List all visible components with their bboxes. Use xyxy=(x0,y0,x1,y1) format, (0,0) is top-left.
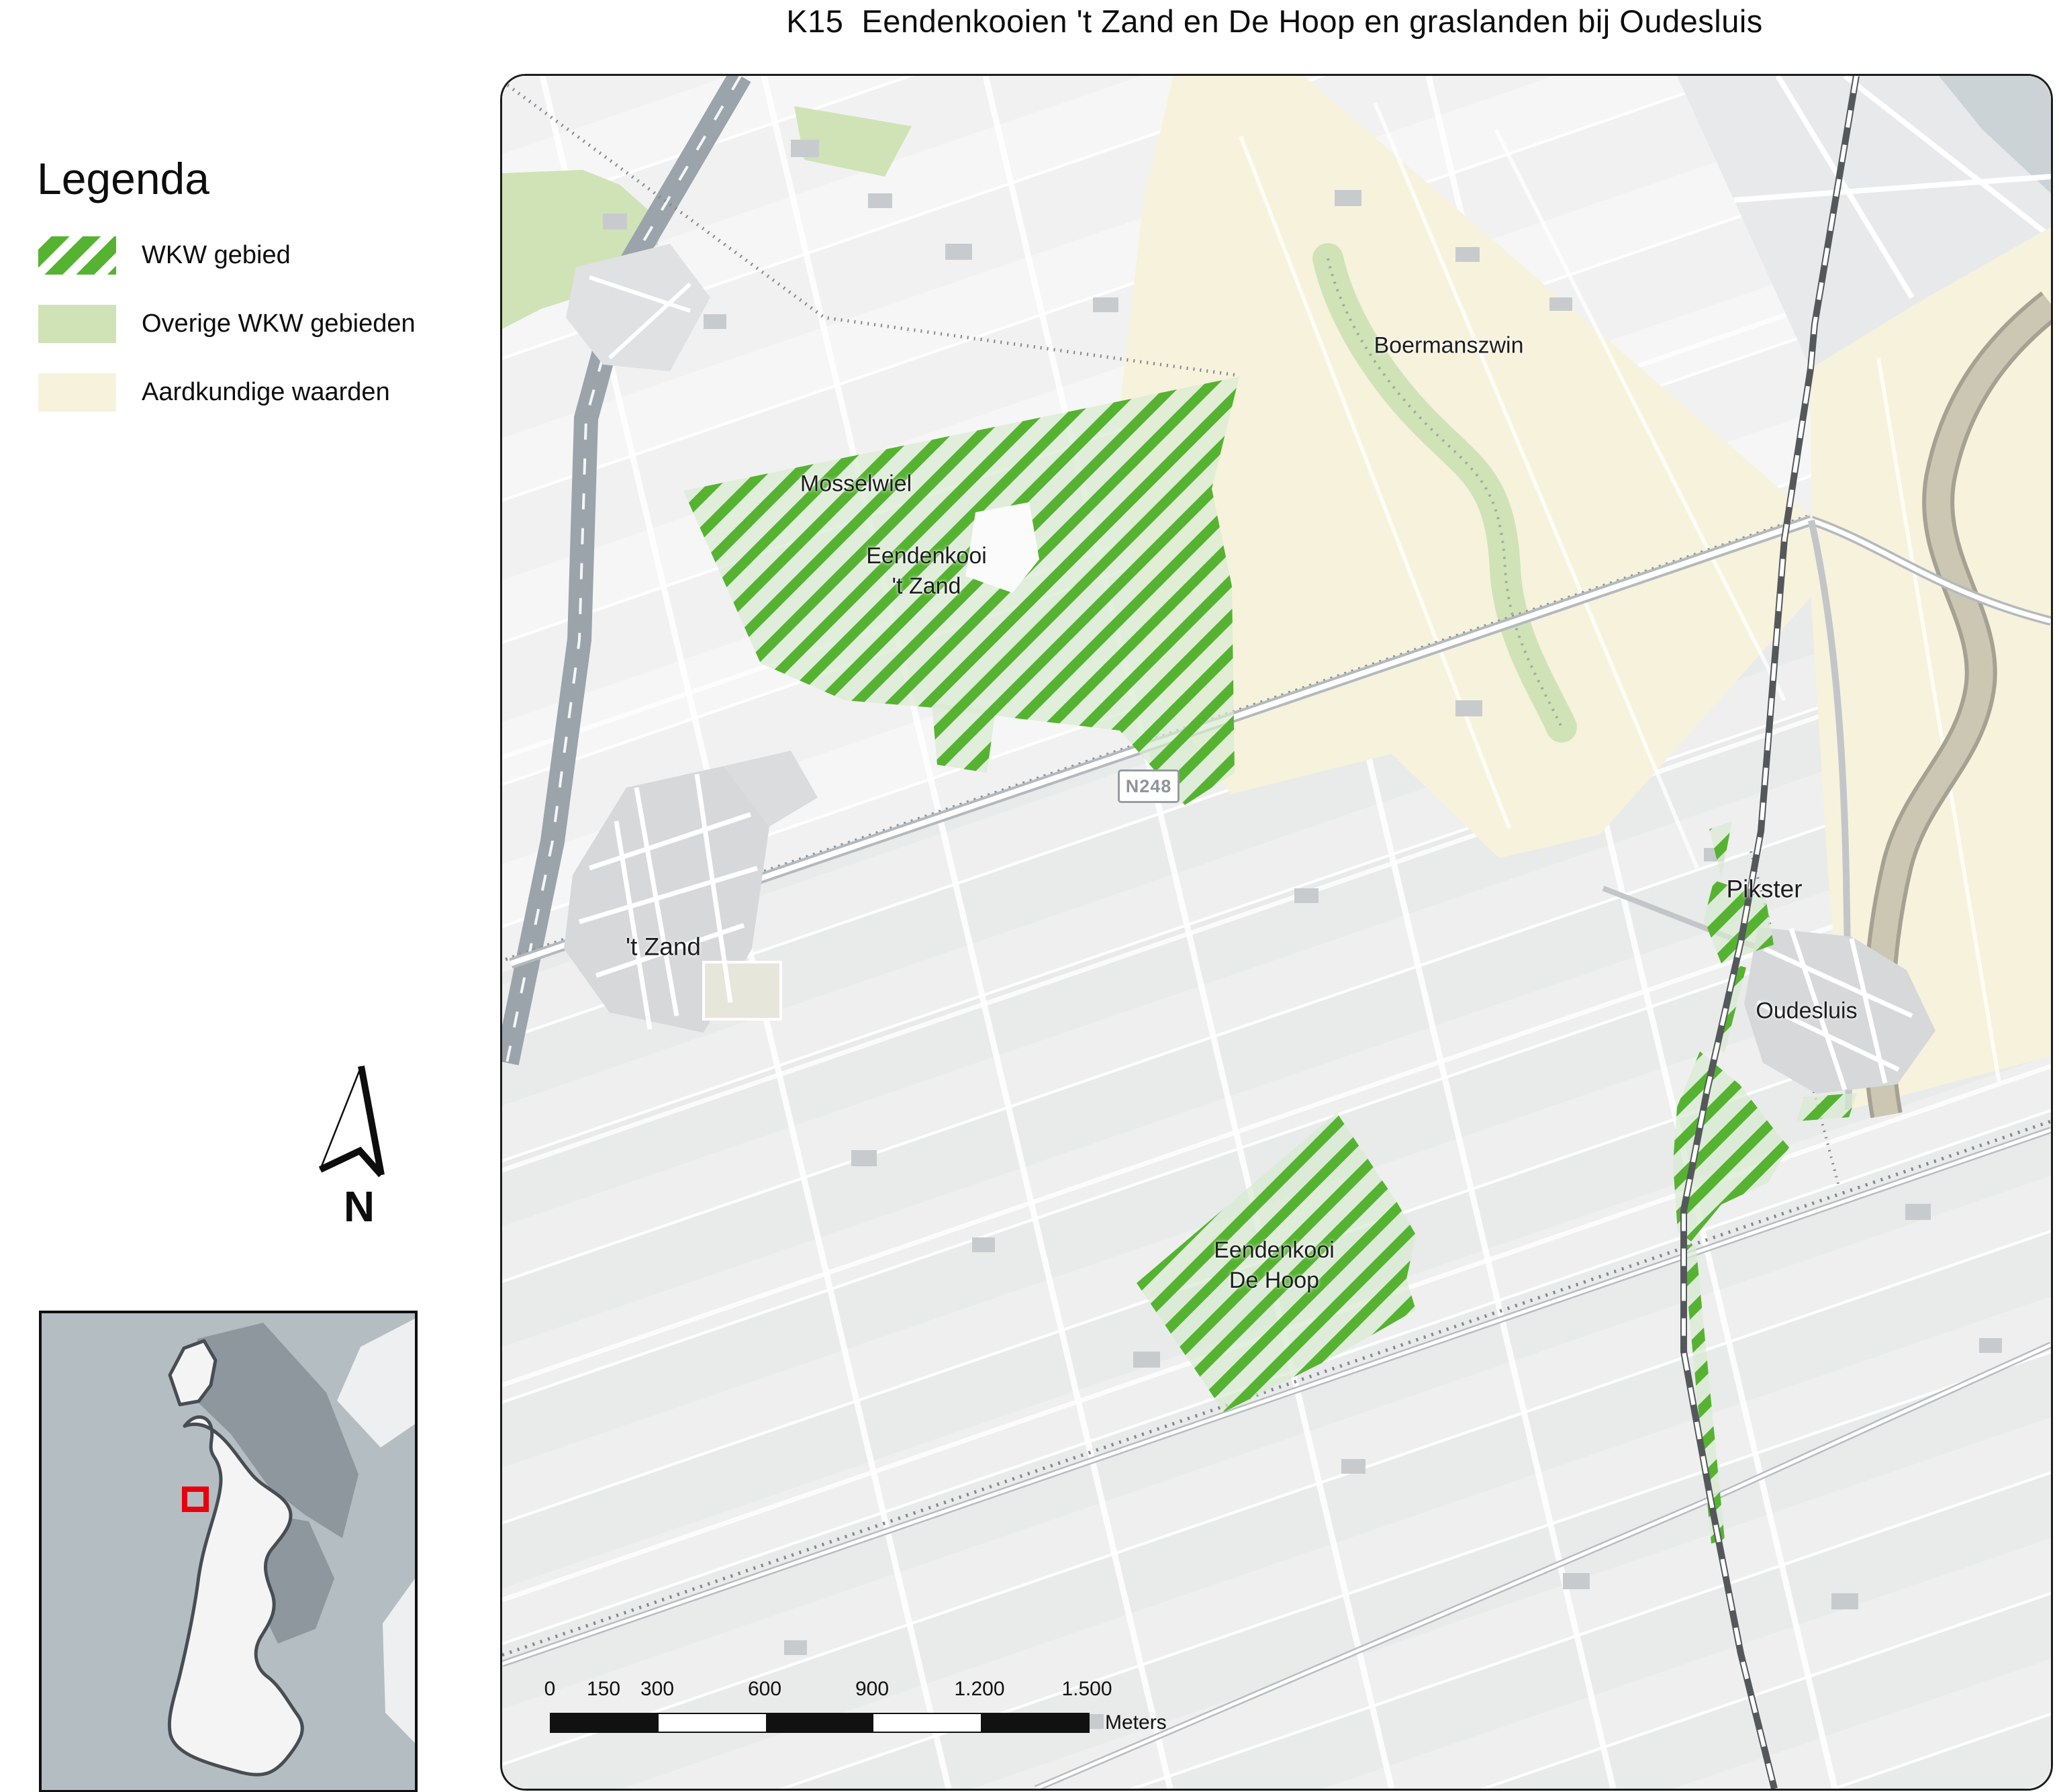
label-pikster: Pikster xyxy=(1726,874,1802,904)
north-arrow: N xyxy=(302,1062,416,1230)
road-shield-n248: N248 xyxy=(1118,769,1180,803)
label-line: De Hoop xyxy=(1214,1266,1335,1296)
north-label: N xyxy=(302,1182,416,1231)
label-line: Eendenkooi xyxy=(866,541,987,571)
label-tzand-village: 't Zand xyxy=(626,932,701,962)
scale-bar-segments xyxy=(550,1713,1090,1733)
sports-field xyxy=(704,962,781,1019)
scale-segment xyxy=(659,1714,766,1732)
scale-tick: 0 xyxy=(544,1678,556,1701)
inset-map-canvas xyxy=(42,1313,415,1790)
legend-heading: Legenda xyxy=(37,153,209,204)
label-eendenkooi-dehoop: Eendenkooi De Hoop xyxy=(1214,1235,1335,1296)
aardkundige-waarden-swatch xyxy=(38,373,116,412)
main-map: Mosselwiel Eendenkooi 't Zand Boermanszw… xyxy=(500,74,2053,1791)
scale-segment xyxy=(981,1714,1088,1732)
wkw-oudesluis-piece xyxy=(1797,1093,1857,1121)
north-arrow-icon xyxy=(302,1062,416,1180)
scale-tick: 900 xyxy=(855,1678,889,1701)
scale-tick: 600 xyxy=(748,1678,781,1701)
scale-unit: Meters xyxy=(1105,1711,1167,1734)
scale-bar: 0 150 300 600 900 1.200 1.500 Meters xyxy=(548,1678,1219,1752)
scale-segment xyxy=(873,1714,981,1732)
page: K15 Eendenkooien 't Zand en De Hoop en g… xyxy=(0,0,2059,1792)
label-oudesluis: Oudesluis xyxy=(1756,996,1857,1027)
scale-tick: 1.200 xyxy=(954,1678,1004,1701)
label-boermanszwin: Boermanszwin xyxy=(1374,331,1524,361)
map-title: K15 Eendenkooien 't Zand en De Hoop en g… xyxy=(500,3,2049,40)
wkw-gebied-hatch-swatch xyxy=(38,236,116,275)
legend-item-label: Aardkundige waarden xyxy=(142,373,390,412)
label-mosselwiel: Mosselwiel xyxy=(800,469,912,500)
scale-tick: 150 xyxy=(587,1678,620,1701)
scale-segment xyxy=(551,1714,659,1732)
legend-item-label: WKW gebied xyxy=(142,236,291,275)
scale-tick: 1.500 xyxy=(1061,1678,1112,1701)
map-canvas xyxy=(502,76,2051,1789)
scale-segment xyxy=(766,1714,873,1732)
label-line: Eendenkooi xyxy=(1214,1235,1335,1266)
legend-item-label: Overige WKW gebieden xyxy=(142,305,416,343)
label-line: 't Zand xyxy=(866,571,987,602)
inset-locator-map xyxy=(39,1311,418,1792)
overige-wkw-swatch xyxy=(38,305,116,343)
label-eendenkooi-tzand: Eendenkooi 't Zand xyxy=(866,541,987,602)
scale-tick: 300 xyxy=(640,1678,674,1701)
wkw-piece-south xyxy=(932,704,996,773)
